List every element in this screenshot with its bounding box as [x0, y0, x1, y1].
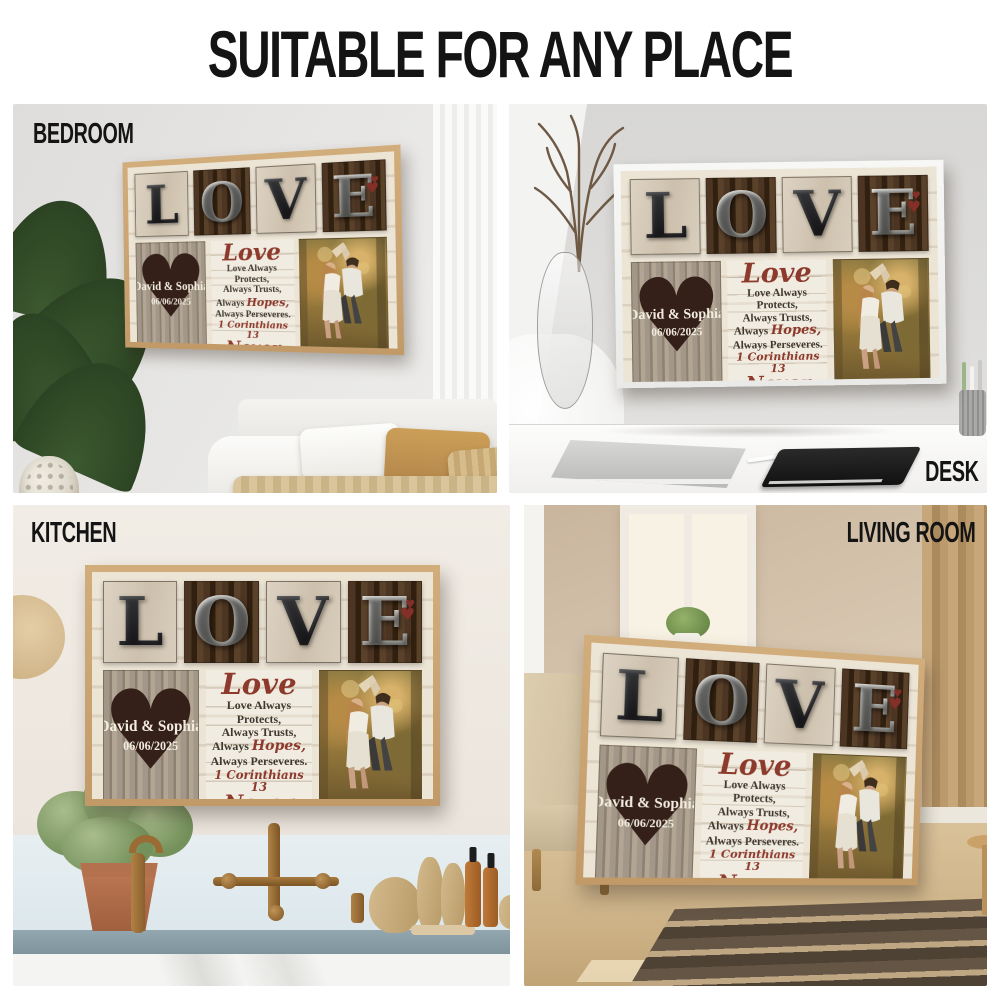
letter-block-v: V: [782, 176, 852, 253]
faucet-knob: [315, 873, 331, 889]
letter-block-v: V: [763, 663, 836, 746]
letter-o: O: [691, 666, 751, 736]
anniversary-date: 06/06/2025: [103, 739, 199, 754]
poster-canvas: L O V E ♥ David & Sophia 06/06/2025: [92, 572, 433, 799]
letter-o: O: [713, 184, 768, 247]
bedroom-scene: L O V E ♥ David & Sophia 06/06/2025: [13, 104, 497, 493]
couple-names-block: David & Sophia 06/06/2025: [136, 279, 207, 307]
letter-block-o: O: [706, 177, 776, 254]
couple-names: David & Sophia: [631, 306, 722, 324]
pen-cup-pens: [958, 360, 987, 392]
poster-shadow: [599, 424, 899, 438]
tan-drape: [922, 505, 987, 845]
collage-title: SUITABLE FOR ANY PLACE: [150, 16, 850, 92]
letter-block-o: O: [184, 581, 259, 663]
bible-verse-reference: 1 Corinthians 13: [206, 769, 313, 794]
hopes-prefix: Always: [707, 819, 747, 833]
love-canvas-poster: L O V E ♥ David & Sophia 06/06/2025: [122, 145, 404, 356]
letter-l: L: [144, 177, 179, 231]
love-canvas-poster: L O V E ♥ David & Sophia 06/06/2025: [85, 565, 440, 806]
verse-line-protects: Love Always Protects,: [206, 699, 313, 726]
love-letter-blocks: L O V E: [588, 643, 919, 752]
letter-l: L: [643, 185, 688, 248]
faucet-knob: [268, 905, 284, 921]
couple-photo: [833, 258, 930, 381]
couple-names: David & Sophia: [103, 718, 199, 736]
never-fails-script: Never Fails: [700, 872, 803, 879]
hopes-word: Hopes,: [746, 818, 798, 835]
couple-photo: [809, 753, 906, 879]
room-label-desk: DESK: [926, 456, 979, 489]
love-letter-blocks: L O V E: [92, 572, 433, 664]
letter-block-v: V: [255, 163, 316, 233]
verse-line-protects: Love Always Protects,: [211, 263, 294, 286]
love-script-title: Love: [742, 261, 812, 288]
poster-slot-kitchen: L O V E ♥ David & Sophia 06/06/2025: [85, 565, 440, 806]
verse-text-panel: Love ♥♥ Love Always Protects, Always Tru…: [210, 239, 295, 348]
armchair-leg: [532, 849, 541, 891]
wood-tray: [411, 925, 475, 935]
verse-line-trusts: Always Trusts,: [206, 726, 313, 739]
letter-v: V: [774, 671, 825, 739]
letter-l: L: [116, 588, 163, 655]
letter-v: V: [264, 170, 307, 228]
verse-text-panel: Love ♥♥ Love Always Protects, Always Tru…: [700, 748, 807, 878]
bible-verse-reference: 1 Corinthians 13: [700, 847, 803, 872]
hopes-prefix: Always: [216, 298, 247, 309]
couple-names-block: David & Sophia 06/06/2025: [594, 793, 697, 831]
couple-photo: [299, 237, 388, 349]
verse-line-protects: Love Always Protects,: [727, 286, 826, 312]
never-fails-script: Never Fails: [206, 793, 313, 799]
living-room-scene: L O V E ♥ David & Sophia 06/06/2025: [524, 505, 987, 986]
desk-scene: L O V E ♥ David & Sophia 06/06/2025: [509, 104, 987, 493]
ceramic-jug: [441, 863, 465, 931]
love-script-title: Love: [221, 671, 296, 699]
carved-heart-panel: ♥ David & Sophia 06/06/2025: [594, 744, 697, 878]
letter-l: L: [614, 661, 665, 732]
verse-text-panel: Love ♥♥ Love Always Protects, Always Tru…: [206, 670, 313, 799]
couple-photo: [319, 670, 422, 799]
poster-slot-desk: L O V E ♥ David & Sophia 06/06/2025: [613, 160, 946, 389]
anniversary-date: 06/06/2025: [594, 814, 697, 831]
letter-block-l: L: [630, 178, 700, 255]
hopes-word: Hopes,: [246, 295, 289, 309]
letter-o: O: [192, 588, 251, 655]
letter-o: O: [199, 173, 244, 229]
never-fails-script: Never Fails: [729, 374, 828, 382]
poster-lower-section: ♥ David & Sophia 06/06/2025 Love ♥♥ Love…: [594, 744, 906, 878]
notebook: [761, 447, 922, 487]
poster-lower-section: ♥ David & Sophia 06/06/2025 Love ♥♥ Love…: [631, 258, 930, 382]
wood-bowl: [499, 895, 510, 929]
carved-heart-panel: ♥ David & Sophia 06/06/2025: [103, 670, 199, 799]
poster-lower-section: ♥ David & Sophia 06/06/2025 Love ♥♥ Love…: [103, 670, 423, 799]
product-collage: SUITABLE FOR ANY PLACE L O: [0, 0, 1000, 1000]
love-canvas-poster: L O V E ♥ David & Sophia 06/06/2025: [575, 635, 925, 886]
letter-block-l: L: [103, 581, 178, 663]
faucet-knob: [221, 873, 237, 889]
counter-front: [13, 954, 510, 986]
carved-heart-panel: ♥ David & Sophia 06/06/2025: [631, 260, 722, 382]
couple-names-block: David & Sophia 06/06/2025: [631, 306, 722, 339]
kitchen-scene: L O V E ♥ David & Sophia 06/06/2025: [13, 505, 510, 986]
ceramic-jug: [417, 857, 443, 931]
carved-heart-panel: ♥ David & Sophia 06/06/2025: [136, 241, 207, 346]
hopes-prefix: Always: [734, 325, 771, 338]
couple-names-block: David & Sophia 06/06/2025: [103, 718, 199, 754]
poster-slot-bedroom: L O V E ♥ David & Sophia 06/06/2025: [122, 145, 404, 356]
love-letter-blocks: L O V E: [620, 166, 938, 256]
couple-photo-art: [810, 754, 906, 879]
couple-names: David & Sophia: [594, 793, 697, 813]
hopes-word: Hopes,: [771, 323, 821, 339]
poster-lower-section: ♥ David & Sophia 06/06/2025 Love ♥♥ Love…: [136, 237, 388, 349]
hopes-prefix: Always: [212, 739, 252, 753]
room-label-bedroom: BEDROOM: [33, 118, 134, 151]
verse-text-panel: Love ♥♥ Love Always Protects, Always Tru…: [727, 259, 828, 382]
area-rug: [622, 897, 987, 986]
poster-slot-living-room: L O V E ♥ David & Sophia 06/06/2025: [575, 635, 925, 886]
verse-line-hopes: Always Hopes,: [728, 324, 827, 340]
never-fails-script: Never Fails: [212, 340, 295, 348]
poster-canvas: L O V E ♥ David & Sophia 06/06/2025: [127, 151, 397, 349]
room-label-living-room: LIVING ROOM: [846, 517, 975, 550]
couple-photo-art: [320, 671, 421, 799]
couple-photo-art: [300, 238, 387, 349]
couple-photo-art: [834, 259, 929, 380]
brass-cylinder: [351, 893, 364, 923]
oil-bottle: [483, 867, 498, 927]
brass-tap: [131, 853, 145, 933]
love-script-title: Love: [719, 750, 792, 780]
pendant-lamp: [13, 595, 65, 679]
side-table-leg: [982, 845, 987, 915]
love-canvas-poster: L O V E ♥ David & Sophia 06/06/2025: [613, 160, 946, 389]
letter-v: V: [792, 183, 842, 246]
letter-block-l: L: [599, 652, 679, 739]
poster-canvas: L O V E ♥ David & Sophia 06/06/2025: [620, 166, 940, 382]
hopes-word: Hopes,: [252, 738, 306, 754]
verse-line-perseveres: Always Perseveres.: [206, 755, 313, 768]
letter-block-o: O: [683, 658, 759, 743]
poster-canvas: L O V E ♥ David & Sophia 06/06/2025: [583, 643, 919, 879]
verse-line-hopes: Always Hopes,: [701, 818, 804, 836]
love-letter-blocks: L O V E: [127, 151, 395, 238]
room-label-kitchen: KITCHEN: [31, 517, 116, 550]
oil-bottle: [465, 861, 481, 927]
anniversary-date: 06/06/2025: [631, 325, 722, 338]
blanket-knit: [233, 476, 497, 493]
letter-block-o: O: [193, 167, 251, 235]
couple-names: David & Sophia: [136, 279, 207, 294]
glass-vase: [537, 252, 593, 409]
love-script-title: Love: [222, 240, 281, 264]
letter-block-v: V: [266, 581, 341, 663]
letter-block-l: L: [135, 171, 189, 237]
verse-line-hopes: Always Hopes,: [206, 739, 313, 755]
anniversary-date: 06/06/2025: [136, 296, 207, 307]
letter-v: V: [277, 588, 329, 655]
pen-cup: [959, 390, 986, 436]
